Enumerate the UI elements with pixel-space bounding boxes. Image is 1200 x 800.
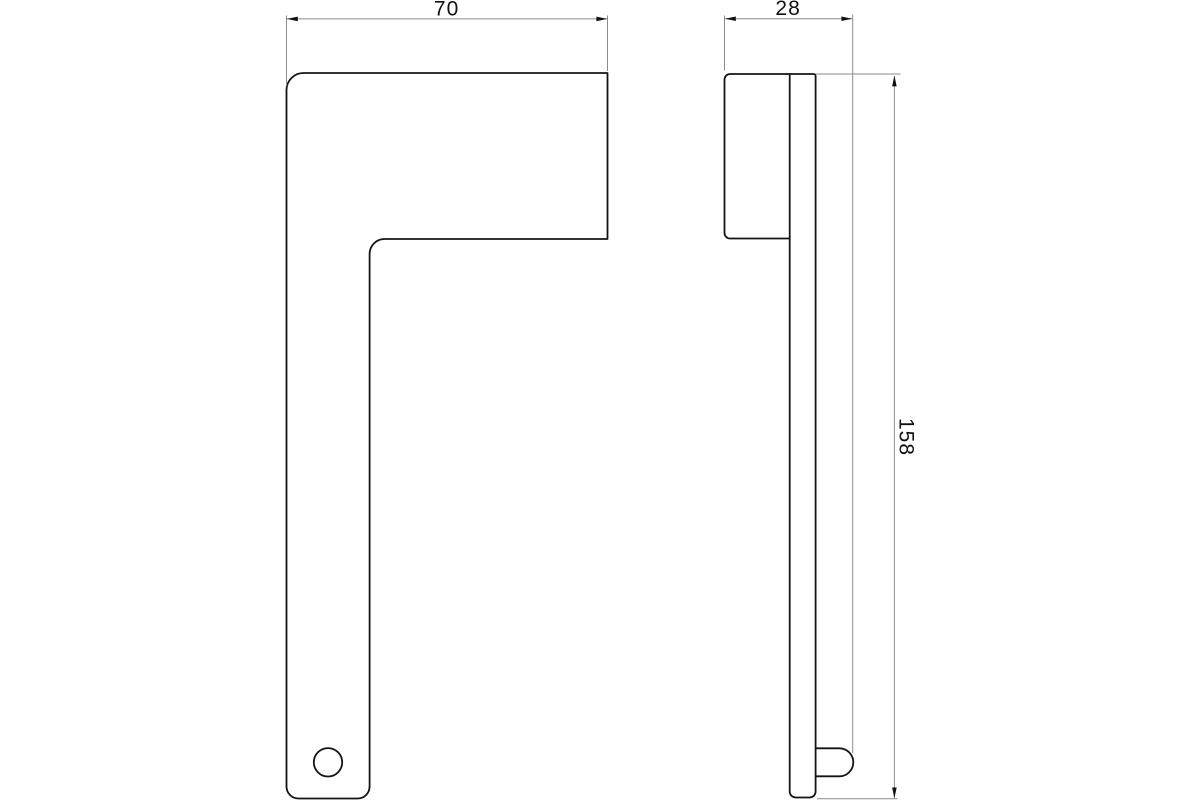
svg-text:158: 158 bbox=[894, 418, 917, 456]
svg-text:70: 70 bbox=[434, 0, 459, 20]
svg-text:28: 28 bbox=[775, 0, 800, 20]
